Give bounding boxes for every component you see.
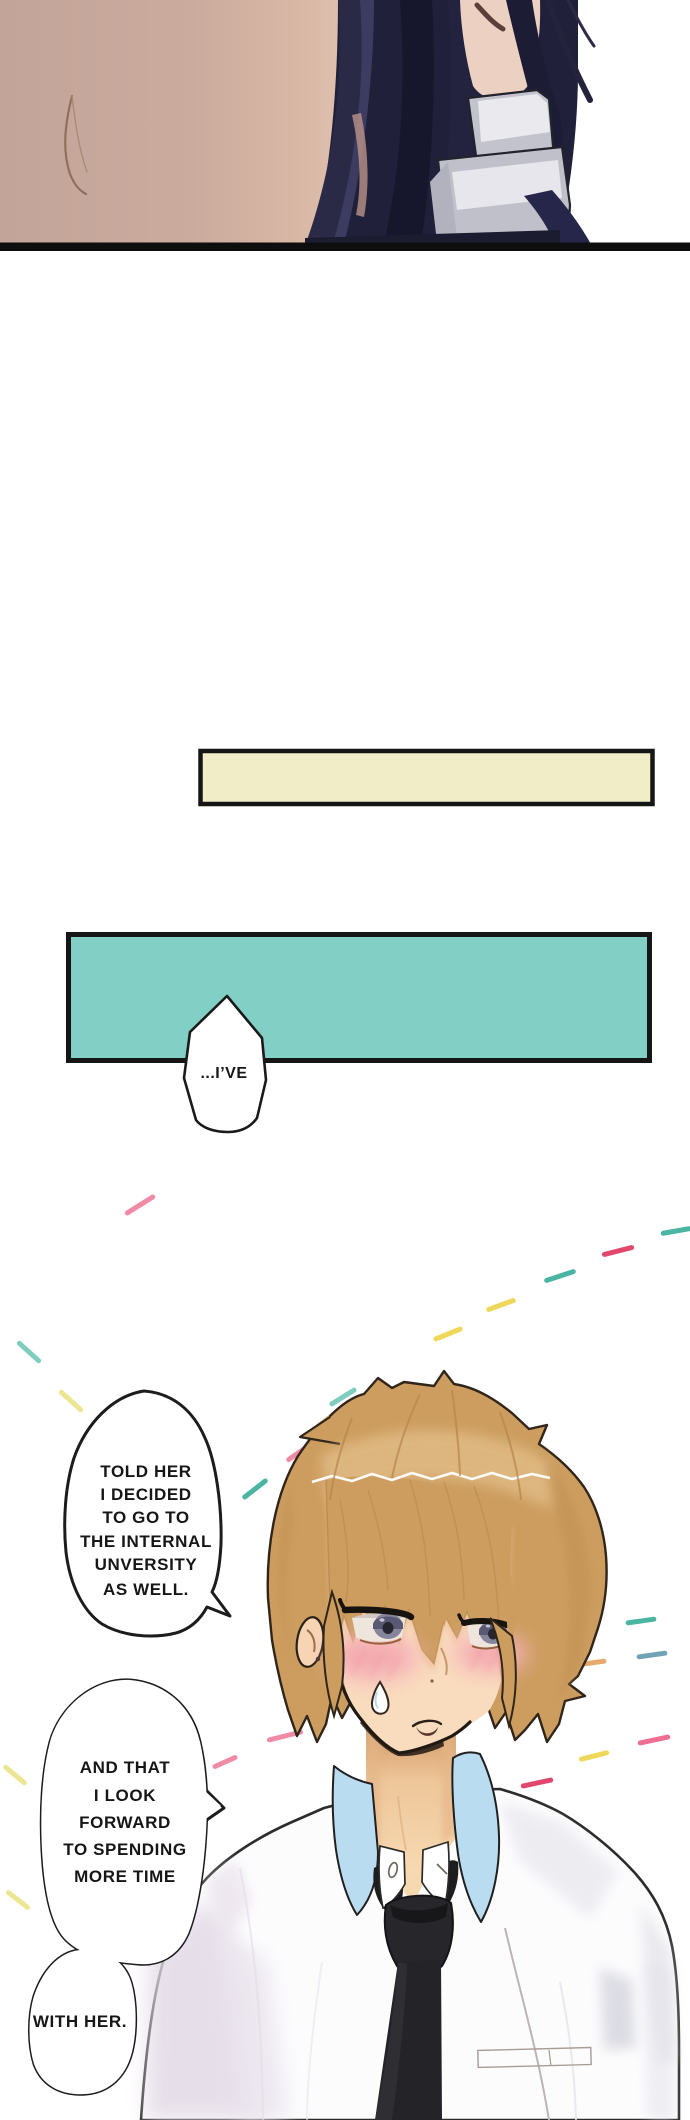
svg-text:TOLD HER: TOLD HER: [100, 1462, 191, 1481]
svg-text:TO GO TO: TO GO TO: [102, 1508, 189, 1527]
svg-text:I DECIDED: I DECIDED: [100, 1485, 191, 1504]
svg-text:UNVERSITY: UNVERSITY: [95, 1555, 198, 1574]
svg-text:MORE TIME: MORE TIME: [74, 1867, 176, 1886]
svg-text:FORWARD: FORWARD: [79, 1813, 171, 1832]
svg-text:THE INTERNAL: THE INTERNAL: [80, 1532, 212, 1551]
svg-text:AS WELL.: AS WELL.: [103, 1580, 189, 1599]
svg-text:TO SPENDING: TO SPENDING: [63, 1840, 186, 1859]
svg-text:I LOOK: I LOOK: [94, 1786, 156, 1805]
svg-text:WITH HER.: WITH HER.: [33, 2012, 127, 2031]
svg-text:AND THAT: AND THAT: [80, 1758, 170, 1777]
svg-text:...I’VE: ...I’VE: [200, 1065, 247, 1082]
